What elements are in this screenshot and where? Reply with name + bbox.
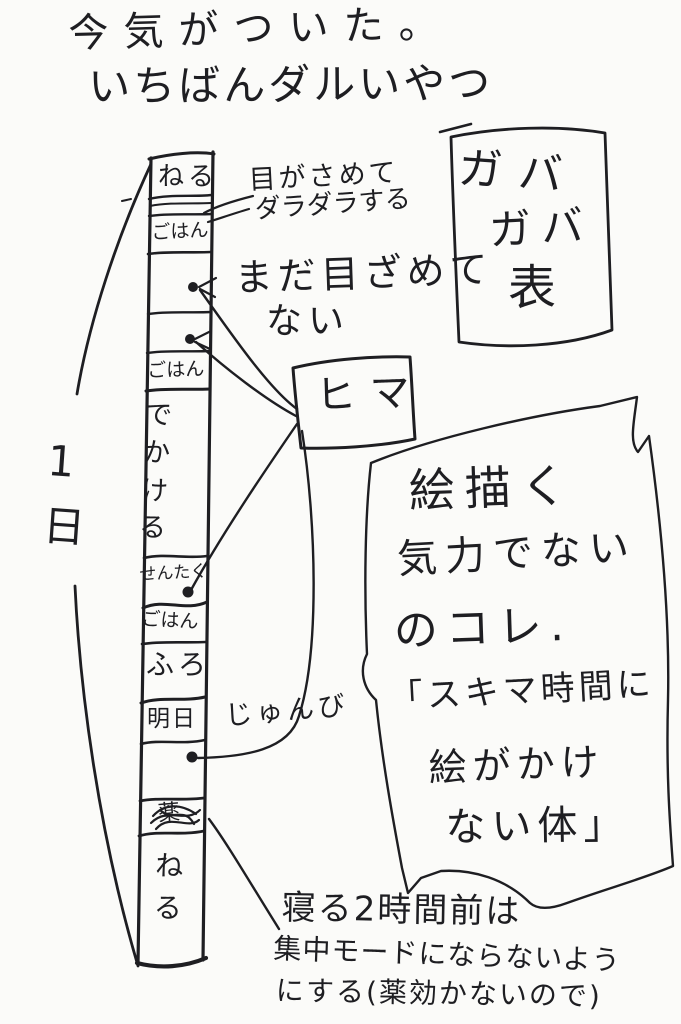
not-awake-note-line-2: ない (266, 302, 350, 342)
big-note-line-5: 絵がかけ (428, 742, 605, 790)
segment-label-bath: ふろ (146, 650, 210, 681)
segment-label-meal-2: ごはん (147, 359, 205, 382)
bedtime-note-connector (209, 819, 279, 929)
segment-label-medicine: 薬 (157, 801, 181, 827)
segment-label-tomorrow: 明日 (147, 707, 197, 732)
title-line-1: 今気がついた。 (68, 2, 454, 56)
gaba-box-line-2: ガバ (488, 203, 594, 255)
timeline-bar (122, 152, 214, 966)
free-time-box-label: ヒマ (315, 370, 424, 418)
day-label: 1日 (41, 428, 96, 561)
idle-dots (183, 282, 199, 763)
gaba-box-line-3: 表 (508, 262, 556, 315)
segment-label-meal-1: ごはん (151, 220, 209, 244)
big-note-line-6: ない体」 (445, 803, 630, 850)
bottom-note-line-3: にする(薬効かないので) (275, 976, 602, 1012)
big-note-line-3: のコレ. (393, 602, 573, 657)
segment-label-sleep-top: ねる (158, 163, 218, 192)
title-line-2: いちばんダルいやつ (88, 60, 493, 110)
sketch-page: 今気がついた。 いちばんダルいやつ 1日 ねる ごはん ごはん でかける せんた… (0, 0, 681, 1024)
gaba-box-line-1: ガバ (457, 145, 580, 202)
segment-label-sleep-bottom: ねる (153, 845, 190, 930)
bottom-note-line-1: 寝る2時間前は (281, 890, 521, 932)
not-awake-note-line-1: まだ目ざめて (234, 249, 493, 300)
big-note-line-1: 絵描く (408, 460, 578, 516)
segment-label-laundry: せんたく (139, 562, 208, 584)
segment-label-meal-3: ごはん (141, 609, 199, 633)
